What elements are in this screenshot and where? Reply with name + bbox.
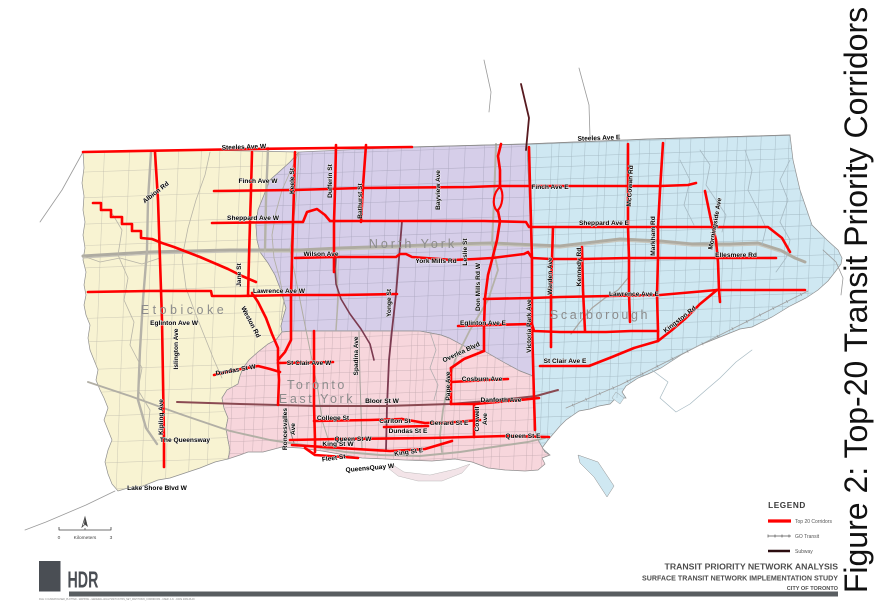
svg-text:Bloor St W: Bloor St W bbox=[365, 398, 399, 405]
svg-text:King St W: King St W bbox=[322, 441, 354, 448]
svg-text:SURFACE TRANSIT NETWORK IMPLEM: SURFACE TRANSIT NETWORK IMPLEMENTATION S… bbox=[642, 575, 838, 583]
svg-text:CITY OF TORONTO: CITY OF TORONTO bbox=[787, 586, 839, 592]
svg-text:Islington Ave: Islington Ave bbox=[173, 328, 180, 369]
svg-text:Ave: Ave bbox=[482, 413, 489, 425]
svg-text:Toronto: Toronto bbox=[287, 378, 347, 392]
svg-text:Keele St: Keele St bbox=[289, 167, 296, 194]
svg-text:Cosburn Ave: Cosburn Ave bbox=[462, 376, 503, 383]
svg-text:Finch Ave E: Finch Ave E bbox=[531, 184, 569, 191]
svg-text:North York: North York bbox=[369, 237, 457, 251]
svg-text:TRANSIT PRIORITY NETWORK ANALY: TRANSIT PRIORITY NETWORK ANALYSIS bbox=[665, 562, 839, 572]
svg-text:LEGEND: LEGEND bbox=[768, 501, 806, 510]
svg-text:East York: East York bbox=[279, 392, 355, 406]
svg-text:Lawrence Ave E: Lawrence Ave E bbox=[609, 291, 660, 298]
svg-text:Scarborough: Scarborough bbox=[550, 308, 650, 322]
svg-text:HDR: HDR bbox=[68, 568, 99, 593]
svg-text:Top 20 Corridors: Top 20 Corridors bbox=[795, 519, 832, 525]
svg-text:Markham Rd: Markham Rd bbox=[650, 216, 657, 256]
svg-text:Eglinton Ave W: Eglinton Ave W bbox=[150, 320, 199, 327]
svg-text:Bayview Ave: Bayview Ave bbox=[435, 170, 442, 210]
svg-text:The Queensway: The Queensway bbox=[160, 437, 211, 444]
svg-text:GO Transit: GO Transit bbox=[795, 534, 820, 540]
svg-text:Dundas St E: Dundas St E bbox=[389, 428, 428, 435]
svg-text:Etobicoke: Etobicoke bbox=[141, 303, 227, 317]
svg-text:Finch Ave W: Finch Ave W bbox=[238, 178, 278, 185]
svg-text:Dufferin St: Dufferin St bbox=[327, 163, 334, 198]
svg-text:St Clair Ave E: St Clair Ave E bbox=[544, 358, 587, 365]
svg-text:FILE: C:\GISDATA\USER_PLOTTED: FILE: C:\GISDATA\USER_PLOTTED - MAPPING … bbox=[39, 598, 195, 601]
svg-text:Eglinton Ave E: Eglinton Ave E bbox=[460, 320, 507, 327]
svg-text:Ellesmere Rd: Ellesmere Rd bbox=[715, 252, 757, 259]
svg-text:Kilometers: Kilometers bbox=[74, 535, 97, 541]
svg-text:Figure 2: Top-20 Transit Prior: Figure 2: Top-20 Transit Priority Corrid… bbox=[838, 7, 874, 593]
svg-text:Roncesvalles: Roncesvalles bbox=[282, 408, 289, 450]
svg-text:3: 3 bbox=[110, 535, 113, 541]
svg-text:Lawrence Ave W: Lawrence Ave W bbox=[253, 288, 306, 295]
svg-text:0: 0 bbox=[58, 535, 61, 541]
svg-text:Ave: Ave bbox=[290, 423, 297, 435]
svg-text:Bathurst St: Bathurst St bbox=[357, 182, 364, 218]
svg-text:Wilson Ave: Wilson Ave bbox=[304, 251, 339, 258]
svg-text:Victoria Park Ave: Victoria Park Ave bbox=[526, 299, 533, 353]
svg-text:Coxwell: Coxwell bbox=[474, 406, 481, 431]
svg-text:Sheppard Ave W: Sheppard Ave W bbox=[227, 215, 280, 222]
svg-text:Queen St E: Queen St E bbox=[505, 433, 541, 440]
svg-text:Jane St: Jane St bbox=[236, 262, 243, 286]
svg-text:Warden Ave: Warden Ave bbox=[547, 257, 554, 295]
svg-text:Sheppard Ave E: Sheppard Ave E bbox=[579, 220, 630, 227]
svg-text:Yonge St: Yonge St bbox=[386, 288, 393, 317]
svg-text:Gerrard St E: Gerrard St E bbox=[430, 420, 469, 427]
svg-text:Spadina Ave: Spadina Ave bbox=[353, 336, 360, 375]
svg-text:Kennedy Rd: Kennedy Rd bbox=[576, 248, 583, 286]
svg-text:Pape Ave: Pape Ave bbox=[445, 371, 452, 401]
svg-text:Kipling Ave: Kipling Ave bbox=[158, 399, 165, 435]
svg-text:Leslie St: Leslie St bbox=[462, 238, 469, 266]
svg-text:College St: College St bbox=[317, 415, 350, 422]
svg-text:Lake Shore Blvd W: Lake Shore Blvd W bbox=[127, 485, 188, 492]
svg-text:Subway: Subway bbox=[795, 549, 813, 555]
svg-text:Don Mills Rd W: Don Mills Rd W bbox=[475, 262, 482, 311]
svg-text:Danforth Ave: Danforth Ave bbox=[481, 397, 522, 404]
svg-text:York Mills Rd: York Mills Rd bbox=[415, 258, 456, 265]
svg-text:Carlton St: Carlton St bbox=[379, 418, 411, 425]
svg-text:St Clair Ave W: St Clair Ave W bbox=[287, 360, 332, 367]
